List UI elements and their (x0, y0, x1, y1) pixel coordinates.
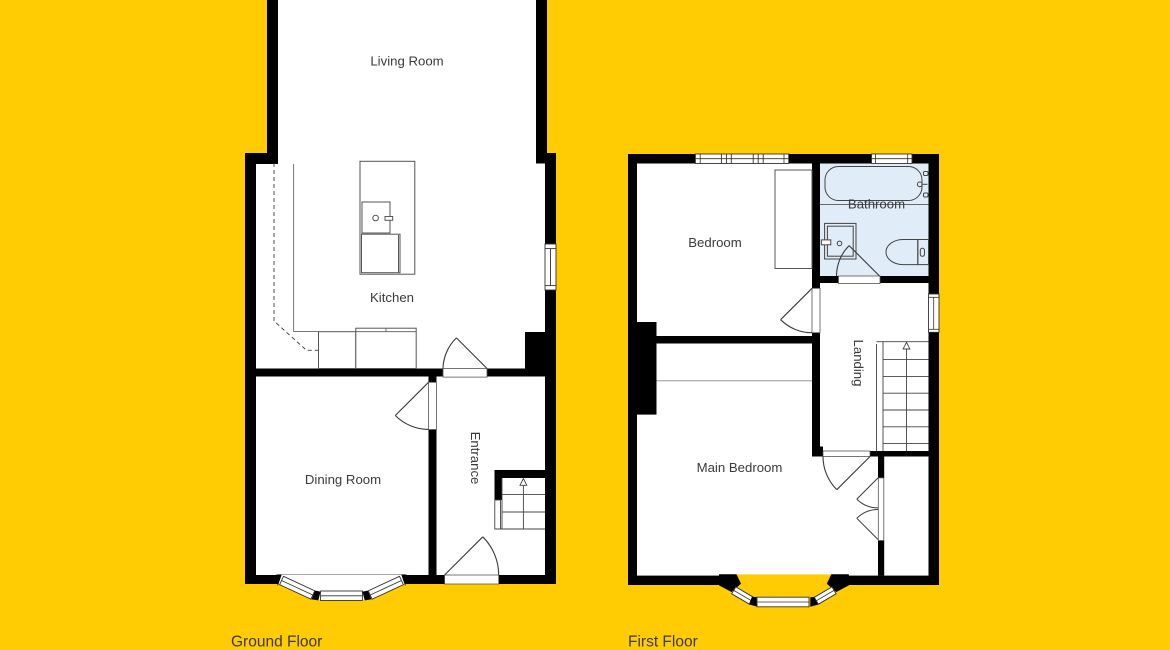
svg-text:Landing: Landing (851, 340, 866, 387)
svg-text:Bedroom: Bedroom (688, 235, 742, 250)
svg-text:Kitchen: Kitchen (370, 290, 414, 305)
svg-text:First Floor: First Floor (628, 634, 698, 650)
svg-text:Dining Room: Dining Room (305, 472, 381, 487)
svg-text:Ground Floor: Ground Floor (231, 634, 322, 650)
svg-text:Main Bedroom: Main Bedroom (697, 460, 783, 475)
svg-text:Entrance: Entrance (468, 432, 483, 485)
svg-text:Bathroom: Bathroom (848, 197, 905, 212)
svg-text:Living Room: Living Room (370, 54, 443, 69)
